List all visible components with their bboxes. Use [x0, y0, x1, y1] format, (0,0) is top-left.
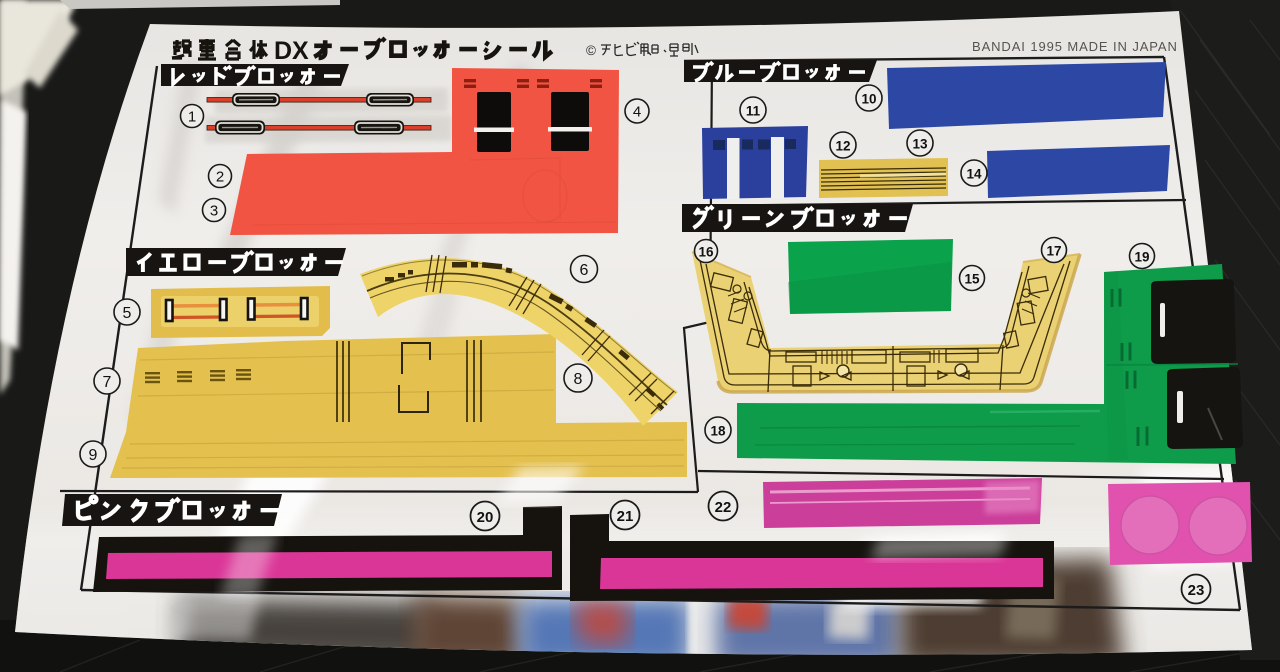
svg-text:2: 2 [216, 169, 224, 186]
svg-text:11: 11 [746, 104, 761, 119]
svg-text:15: 15 [964, 272, 980, 287]
svg-text:5: 5 [123, 305, 132, 322]
svg-text:7: 7 [103, 374, 112, 391]
svg-text:©: © [586, 43, 596, 58]
svg-text:14: 14 [966, 167, 982, 182]
svg-text:13: 13 [912, 137, 928, 152]
svg-text:22: 22 [715, 499, 732, 516]
svg-text:23: 23 [1188, 582, 1205, 599]
svg-text:21: 21 [617, 508, 634, 525]
svg-text:20: 20 [477, 509, 494, 526]
svg-text:16: 16 [698, 245, 714, 260]
svg-text:BANDAI 1995 MADE IN JAPAN: BANDAI 1995 MADE IN JAPAN [972, 39, 1178, 54]
svg-text:19: 19 [1134, 250, 1149, 265]
svg-text:8: 8 [574, 371, 583, 388]
svg-text:6: 6 [580, 262, 589, 279]
svg-text:9: 9 [89, 447, 98, 464]
svg-text:4: 4 [633, 104, 641, 121]
svg-text:18: 18 [710, 424, 726, 439]
svg-text:10: 10 [861, 92, 876, 107]
svg-text:1: 1 [188, 109, 196, 126]
svg-text:DX: DX [274, 37, 309, 65]
svg-text:12: 12 [835, 139, 850, 154]
svg-text:17: 17 [1046, 244, 1061, 259]
svg-text:3: 3 [210, 203, 218, 220]
